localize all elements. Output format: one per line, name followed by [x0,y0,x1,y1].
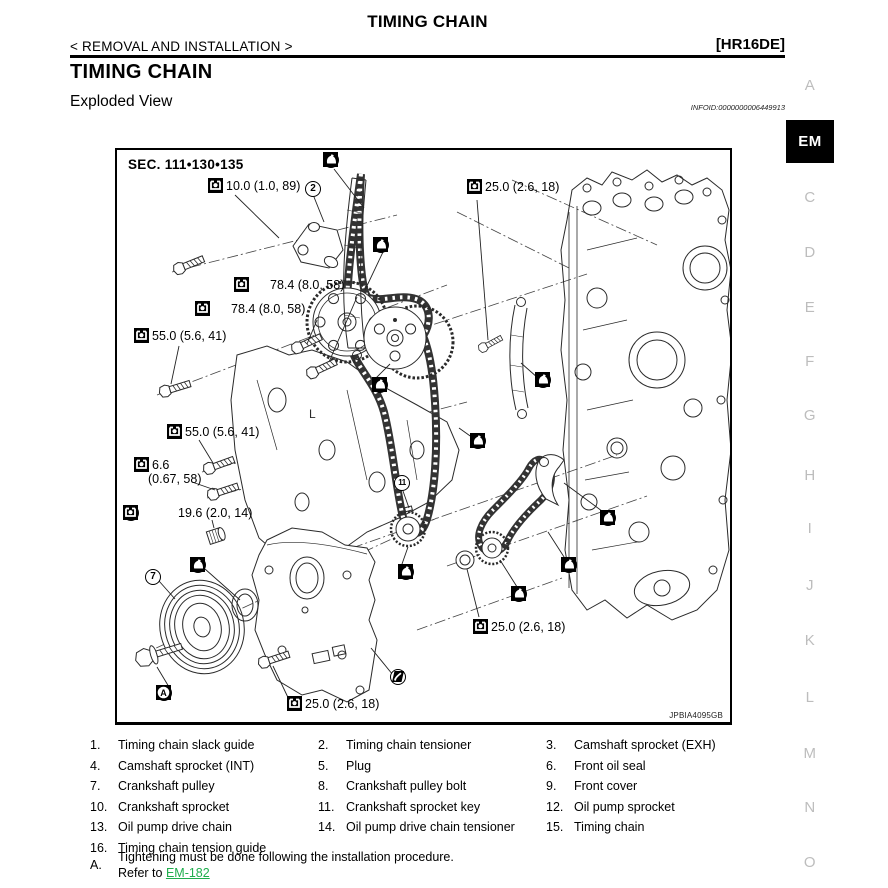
sidebar-letter-n[interactable]: N [786,799,834,816]
front-cover-art [252,528,377,702]
sealant-brush-icon [409,670,424,685]
torque-wrench-icon [473,620,488,635]
callout-balloon-4: 4 [372,377,406,393]
sidebar-letter-em[interactable]: EM [786,120,834,163]
sec-label: SEC. 111•130•135 [128,157,244,172]
ref-a-icon: A [211,686,226,701]
callout-torque-24: 25.0 (2.6, 18) [473,619,565,635]
legend-item-number: 7. [90,779,118,793]
legend-note: A. Tightening must be done following the… [70,849,454,881]
engine-code-badge: [HR16DE] [716,36,785,53]
legend-item-label: Front cover [574,779,637,793]
flange-nut-art [456,551,474,569]
torque-spec-text: 78.4 (8.0, 58) [270,278,344,292]
sidebar-letter-a[interactable]: A [786,77,834,94]
callout-torque-3: 25.0 (2.6, 18) [467,179,559,195]
callout-balloon-15: 15 [470,433,504,449]
callout-balloon-16: 16 [535,372,569,388]
callout-balloon-3: 3 [373,237,407,253]
torque-wrench-icon [213,302,228,317]
breadcrumb: < REMOVAL AND INSTALLATION > [70,39,293,54]
legend-item-11: 11.Crankshaft sprocket key [298,800,526,814]
sidebar-letter-c[interactable]: C [786,189,834,206]
legend-item-label: Timing chain tensioner [346,738,471,752]
em-182-link[interactable]: EM-182 [166,866,210,880]
legend-item-number: 9. [546,779,574,793]
callout-balloon-12: 12 [511,586,545,602]
legend-item-label: Plug [346,759,371,773]
page-title: TIMING CHAIN [70,12,785,32]
sidebar-letter-j[interactable]: J [786,577,834,594]
figure-code: JPBIA4095GB [669,711,723,720]
legend-item-number: 8. [318,779,346,793]
torque-wrench-icon [167,425,182,440]
legend-item-number: 6. [546,759,574,773]
svg-text:L: L [309,407,316,421]
callout-balloon-2: 2 [305,181,321,197]
note-line2: Refer to EM-182 [118,865,454,881]
tension-guide-art [510,298,528,419]
torque-spec-text: 55.0 (5.6, 41) [185,425,259,439]
sidebar-letter-l[interactable]: L [786,689,834,706]
legend-item-number: 10. [90,800,118,814]
torque-spec-text: 6.6 [152,458,169,472]
legend-item-label: Crankshaft pulley [118,779,215,793]
callout-balloon: 2 [305,181,321,197]
callout-balloon-14: 14 [600,510,634,526]
legend-item-label: Oil pump sprocket [574,800,675,814]
legend-item-label: Camshaft sprocket (EXH) [574,738,716,752]
torque-wrench-icon [287,697,302,712]
engine-block-art [561,170,730,620]
callout-balloon-1: 1 [323,152,357,168]
legend-item-label: Front oil seal [574,759,646,773]
oil-apply-icon [175,686,190,701]
legend-item-number: 2. [318,738,346,752]
legend-item-label: Timing chain [574,820,644,834]
torque-spec-text-line2: (0.67, 58) [148,472,202,486]
sidebar-letter-h[interactable]: H [786,467,834,484]
legend-item-3: 3.Camshaft sprocket (EXH) [526,738,786,752]
legend-item-number: 14. [318,820,346,834]
legend-item-10: 10.Crankshaft sprocket [70,800,298,814]
sidebar-letter-f[interactable]: F [786,353,834,370]
note-line1: Tightening must be done following the in… [118,849,454,865]
torque-spec-text: 25.0 (2.6, 18) [485,180,559,194]
legend-item-9: 9.Front cover [526,779,786,793]
sidebar-letter-o[interactable]: O [786,854,834,871]
legend-item-label: Crankshaft pulley bolt [346,779,466,793]
legend-item-label: Oil pump drive chain [118,820,232,834]
parts-legend: 1.Timing chain slack guide2.Timing chain… [70,738,786,855]
torque-wrench-icon [193,686,208,701]
legend-item-label: Camshaft sprocket (INT) [118,759,254,773]
oil-apply-icon [489,434,504,449]
sidebar-letter-e[interactable]: E [786,299,834,316]
cam-sprocket-int-art [364,306,453,378]
legend-item-number: 12. [546,800,574,814]
legend-item-number: 5. [318,759,346,773]
callout-balloon-9: 9 [390,669,424,685]
legend-item-label: Crankshaft sprocket [118,800,229,814]
legend-item-2: 2.Timing chain tensioner [298,738,526,752]
callout-torque-5: 78.4 (8.0, 58) [234,277,344,293]
infoid-label: INFOID:0000000006449913 [691,103,785,112]
note-text: Tightening must be done following the in… [118,849,454,881]
note-number: A. [70,857,118,873]
crank-sprocket-art [391,512,425,546]
sidebar-letter-i[interactable]: I [786,520,834,537]
legend-item-number: 1. [90,738,118,752]
note-line2-prefix: Refer to [118,866,166,880]
legend-item-15: 15.Timing chain [526,820,786,834]
callout-balloon: 7 [145,569,161,585]
oil-apply-icon [392,238,407,253]
sidebar-letter-m[interactable]: M [786,745,834,762]
legend-item-4: 4.Camshaft sprocket (INT) [70,759,298,773]
legend-item-number: 3. [546,738,574,752]
oil-apply-icon [530,587,545,602]
legend-item-8: 8.Crankshaft pulley bolt [298,779,526,793]
sidebar-letter-g[interactable]: G [786,407,834,424]
legend-item-5: 5.Plug [298,759,526,773]
callout-torque-7: 55.0 (5.6, 41) [134,328,226,344]
legend-item-14: 14.Oil pump drive chain tensioner [298,820,526,834]
callout-balloon-6: 6 [190,557,242,573]
callout-torque-1: 10.0 (1.0, 89) [208,178,300,194]
sidebar-letter-d[interactable]: D [786,244,834,261]
callout-balloon-10: 10 [398,564,432,580]
torque-wrench-icon [467,180,482,195]
svg-text:A: A [160,688,167,698]
legend-item-1: 1.Timing chain slack guide [70,738,298,752]
do-not-reuse-icon [209,558,224,573]
legend-item-12: 12.Oil pump sprocket [526,800,786,814]
header-divider [70,55,785,58]
torque-spec-text: 25.0 (2.6, 18) [491,620,565,634]
legend-item-number: 15. [546,820,574,834]
callout-torque-9: 55.0 (5.6, 41) [167,424,259,440]
plug-art [206,527,226,545]
oil-apply-icon [227,558,242,573]
legend-item-label: Oil pump drive chain tensioner [346,820,515,834]
sealant-brush-icon [142,506,157,521]
legend-item-number: 4. [90,759,118,773]
torque-wrench-icon [160,506,175,521]
torque-wrench-icon [134,329,149,344]
section-title: TIMING CHAIN [70,61,212,84]
legend-item-13: 13.Oil pump drive chain [70,820,298,834]
legend-item-label: Crankshaft sprocket key [346,800,480,814]
callout-balloon: 11 [394,475,410,491]
torque-spec-text: 78.4 (8.0, 58) [231,302,305,316]
torque-wrench-icon [252,278,267,293]
callout-balloon-11: 11 [394,475,410,491]
legend-item-number: 13. [90,820,118,834]
oil-apply-icon [391,378,406,393]
callout-torque-10: 6.6(0.67, 58) [134,457,169,473]
legend-item-6: 6.Front oil seal [526,759,786,773]
chain-tensioner-art [293,223,343,270]
legend-item-number: 11. [318,800,346,814]
oil-apply-icon [342,153,357,168]
sidebar-letter-k[interactable]: K [786,632,834,649]
oil-apply-icon [619,511,634,526]
callout-balloon-5: 519.6 (2.0, 14) [123,505,252,521]
callout-balloon-8: 8A [156,685,226,701]
torque-spec-text: 19.6 (2.0, 14) [178,506,252,520]
subsection-title: Exploded View [70,93,172,111]
torque-wrench-icon [208,179,223,194]
torque-spec-text: 25.0 (2.6, 18) [305,697,379,711]
exploded-view-figure: L [115,148,732,725]
torque-spec-text: 55.0 (5.6, 41) [152,329,226,343]
legend-item-label: Timing chain slack guide [118,738,254,752]
legend-item-7: 7.Crankshaft pulley [70,779,298,793]
callout-balloon-13: 13 [561,557,595,573]
oil-apply-icon [580,558,595,573]
torque-wrench-icon [134,458,149,473]
callout-torque-23: 25.0 (2.6, 18) [287,696,379,712]
callout-balloon-7: 7 [145,569,161,585]
callout-torque-6: 78.4 (8.0, 58) [195,301,305,317]
oil-apply-icon [554,373,569,388]
torque-spec-text: 10.0 (1.0, 89) [226,179,300,193]
oil-apply-icon [417,565,432,580]
